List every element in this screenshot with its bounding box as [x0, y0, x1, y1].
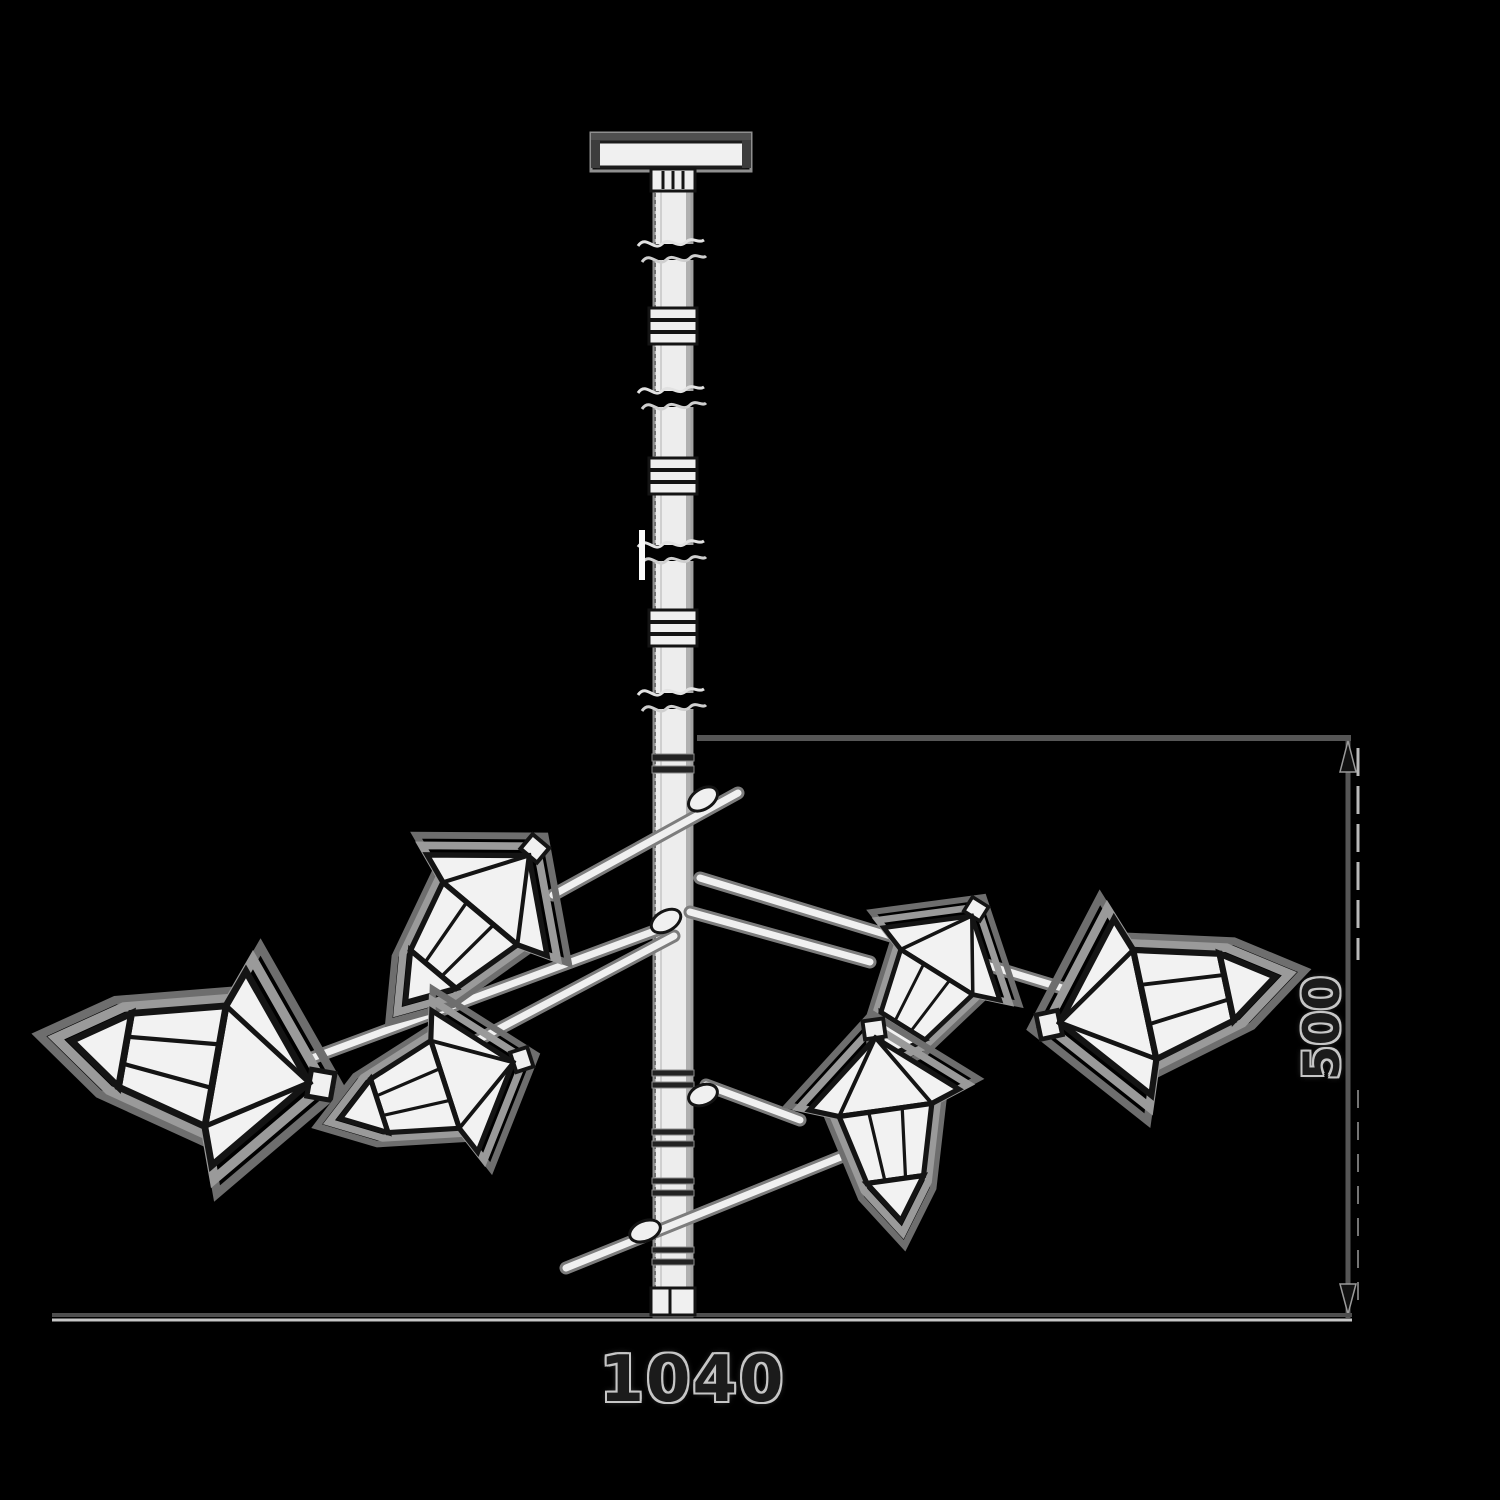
- drawing-canvas: 1040 500: [0, 0, 1500, 1500]
- ceiling-plate: [591, 133, 751, 171]
- lantern-far-left: [17, 912, 362, 1212]
- lantern-lower-right: [777, 1000, 999, 1259]
- arm: [706, 1085, 800, 1120]
- dimension-height-label: 500: [1292, 958, 1352, 1098]
- arm: [566, 1150, 858, 1268]
- fixture-drawing: [0, 0, 1500, 1500]
- arrowhead-up-icon: [1340, 741, 1356, 772]
- stem-tick: [639, 530, 645, 580]
- arrowhead-down-icon: [1340, 1284, 1356, 1314]
- stem: [638, 169, 706, 1316]
- dimension-width-label: 1040: [575, 1340, 810, 1420]
- lantern-far-right: [1007, 859, 1328, 1140]
